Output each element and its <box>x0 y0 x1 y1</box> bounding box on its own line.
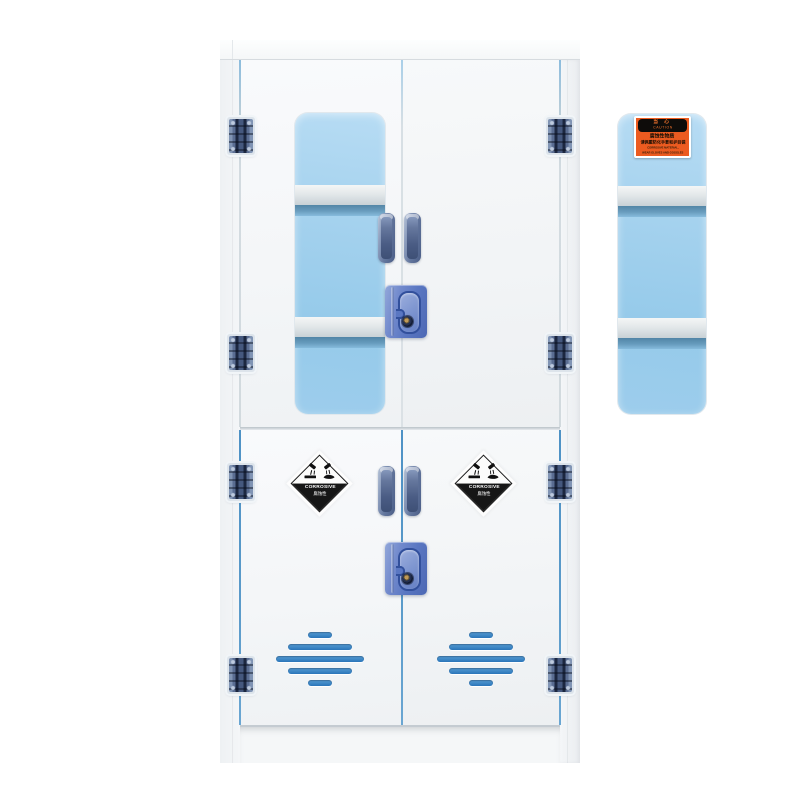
shelf-face <box>295 185 385 205</box>
hinge <box>546 463 574 501</box>
upper-door-lock <box>385 285 427 338</box>
lower-left-door-handle <box>378 466 395 516</box>
hinge <box>546 117 574 155</box>
shelf-edge <box>295 317 385 348</box>
caution-label-line2: 请佩戴防化手套和护目镜 <box>640 141 685 145</box>
corrosive-label-right: CORROSIVE 腐蚀性 <box>455 455 513 513</box>
hinge <box>546 334 574 372</box>
hinge <box>227 117 255 155</box>
upper-left-door <box>240 60 401 427</box>
hinge <box>227 463 255 501</box>
upper-left-door-handle <box>378 213 395 263</box>
hinge <box>546 656 574 694</box>
lower-door-lock <box>385 542 427 595</box>
shelf-shadow <box>618 206 706 217</box>
vent-slot <box>469 632 493 638</box>
corrosive-label-text-en: CORROSIVE <box>305 485 336 490</box>
product-photo: 当 心 CAUTION 腐蚀性物质 请佩戴防化手套和护目镜 CORROSIVE … <box>0 0 800 800</box>
hinge <box>227 656 255 694</box>
caution-label-banner: 当 心 CAUTION <box>638 119 687 132</box>
caution-label-line4: WEAR GLOVES AND GOGGLES <box>642 152 683 154</box>
shelf-edge <box>295 185 385 216</box>
vent-slot <box>288 644 352 650</box>
corrosive-pictogram-icon <box>303 463 337 480</box>
lock-key-cylinder <box>402 316 413 327</box>
caution-label-title-cn: 当 心 <box>653 120 671 126</box>
shelf-shadow <box>295 337 385 348</box>
corrosive-label-content: CORROSIVE 腐蚀性 <box>455 455 513 513</box>
chemical-safety-cabinet: 当 心 CAUTION 腐蚀性物质 请佩戴防化手套和护目镜 CORROSIVE … <box>220 39 580 763</box>
lock-key-cylinder <box>402 573 413 584</box>
vent-slot <box>449 668 513 674</box>
corrosive-label-content: CORROSIVE 腐蚀性 <box>291 455 349 513</box>
caution-label-title-en: CAUTION <box>653 127 673 130</box>
door-gap-line <box>401 60 403 427</box>
caution-label: 当 心 CAUTION 腐蚀性物质 请佩戴防化手套和护目镜 CORROSIVE … <box>634 116 691 158</box>
shelf-face <box>618 186 706 206</box>
shelf-shadow <box>295 205 385 216</box>
upper-right-door: 当 心 CAUTION 腐蚀性物质 请佩戴防化手套和护目镜 CORROSIVE … <box>403 60 560 427</box>
hinge <box>227 334 255 372</box>
top-panel-seam <box>232 40 233 59</box>
shelf-shadow <box>618 338 706 349</box>
shelf-edge <box>618 186 706 217</box>
upper-left-door-window <box>295 113 385 414</box>
vent-slot <box>449 644 513 650</box>
vent-slot <box>288 668 352 674</box>
base-panel <box>240 727 560 763</box>
vent-slot <box>437 656 525 662</box>
corrosive-label-left: CORROSIVE 腐蚀性 <box>291 455 349 513</box>
corrosive-label-text-cn: 腐蚀性 <box>478 492 491 496</box>
caution-label-line3: CORROSIVE MATERIAL, <box>647 147 678 149</box>
lower-right-door-handle <box>404 466 421 516</box>
vent-slot <box>276 656 364 662</box>
corrosive-label-text-en: CORROSIVE <box>469 485 500 490</box>
corrosive-label-text-cn: 腐蚀性 <box>314 492 327 496</box>
shelf-face <box>295 317 385 337</box>
cabinet-top-panel <box>220 39 580 60</box>
vent-slot <box>308 680 332 686</box>
vent-slot <box>308 632 332 638</box>
caution-label-line1: 腐蚀性物质 <box>650 134 675 140</box>
vent-slot <box>469 680 493 686</box>
corrosive-pictogram-icon <box>467 463 501 480</box>
shelf-face <box>618 318 706 338</box>
upper-right-door-window: 当 心 CAUTION 腐蚀性物质 请佩戴防化手套和护目镜 CORROSIVE … <box>618 114 706 414</box>
section-divider <box>240 427 560 430</box>
shelf-edge <box>618 318 706 349</box>
upper-right-door-handle <box>404 213 421 263</box>
